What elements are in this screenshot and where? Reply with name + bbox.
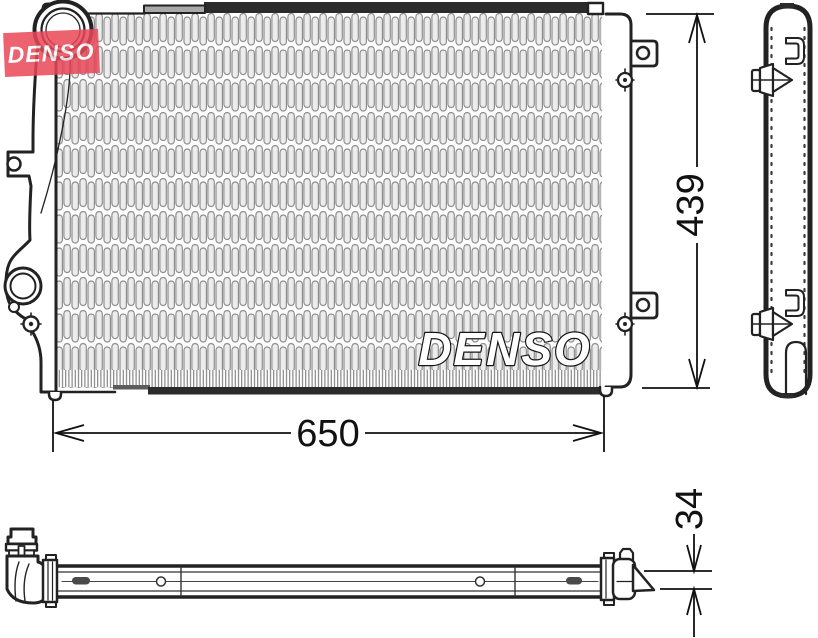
- mounting-tab-left-hole: [8, 158, 21, 171]
- bottom-hole-2: [476, 577, 485, 586]
- bracket-bottom-hole: [637, 299, 649, 311]
- right-tank-top-tab: [588, 3, 603, 14]
- bottom-view: [6, 529, 654, 607]
- bottom-right-endcap: [601, 549, 654, 605]
- radiator-drawing-svg: DENSO: [0, 0, 818, 638]
- side-top-notch: [780, 3, 794, 8]
- dim-height: 439: [642, 14, 714, 388]
- dim-depth-label: 34: [669, 488, 711, 530]
- dim-height-label: 439: [670, 173, 712, 236]
- dim-depth: 34: [644, 488, 712, 637]
- bottom-tank-bar: [148, 387, 606, 395]
- side-view: [752, 3, 810, 398]
- bottom-bar-step: [113, 385, 150, 390]
- top-tank-bar: [204, 2, 602, 13]
- radiator-technical-drawing-page: DENSO: [0, 0, 818, 638]
- top-tank-bar-gray: [144, 6, 205, 14]
- bracket-top-hole: [637, 47, 649, 59]
- core-logo-text: DENSO: [418, 323, 592, 375]
- bottom-hole-1: [157, 577, 166, 586]
- bottom-left-pipe-elbow: [6, 529, 57, 607]
- bottom-slot-right: [566, 577, 582, 585]
- watermark-text: DENSO: [7, 38, 95, 68]
- right-foot: [600, 387, 612, 396]
- left-foot: [49, 392, 61, 400]
- front-view: DENSO: [5, 2, 657, 401]
- bottom-slot-left: [72, 577, 90, 585]
- dim-width: 650: [53, 396, 604, 455]
- dim-width-label: 650: [296, 413, 359, 455]
- watermark-logo: DENSO: [3, 29, 100, 77]
